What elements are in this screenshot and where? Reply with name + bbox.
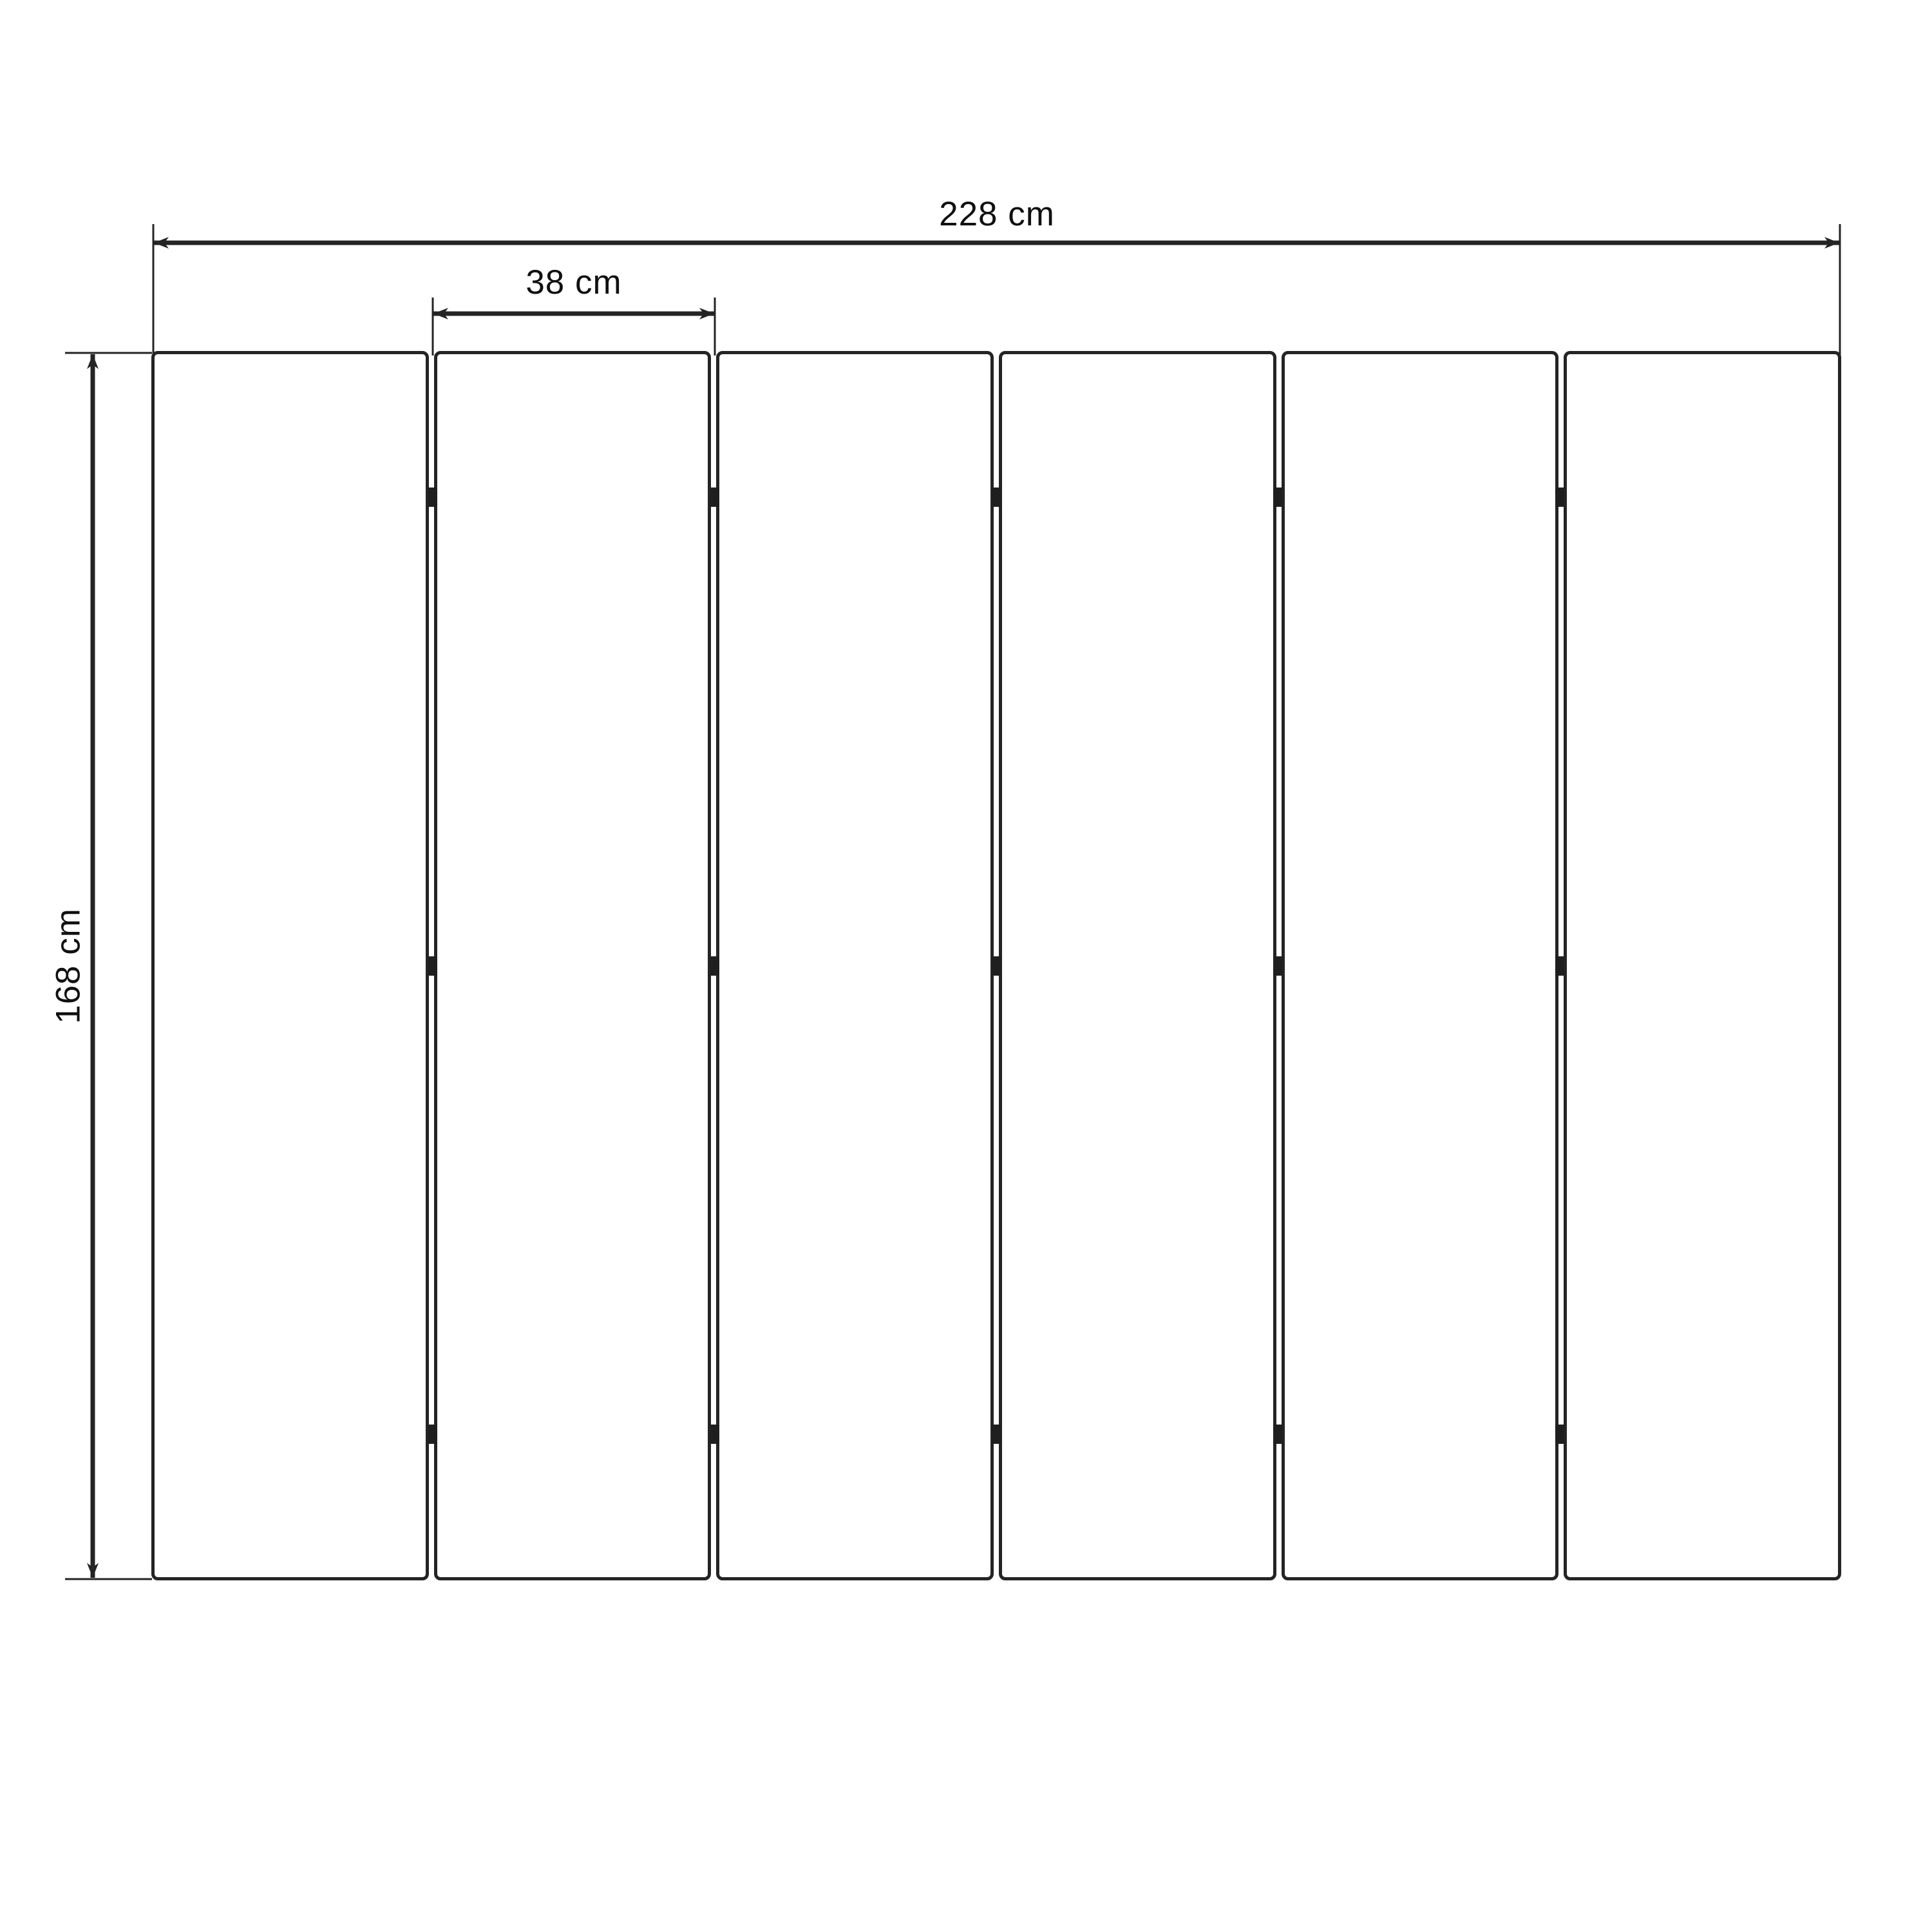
hinge-icon xyxy=(710,1425,719,1444)
panel-5 xyxy=(1282,351,1559,1580)
hinge-icon xyxy=(1555,488,1564,507)
panel-2 xyxy=(434,351,712,1580)
panel-width-dimension xyxy=(433,298,715,355)
panel-1 xyxy=(151,351,429,1580)
height-label: 168 cm xyxy=(52,908,86,1024)
hinge-icon xyxy=(1555,956,1564,976)
hinge-icon xyxy=(1273,488,1282,507)
panel-width-label: 38 cm xyxy=(445,265,703,299)
total-width-label: 228 cm xyxy=(836,197,1158,231)
hinge-icon xyxy=(1273,1425,1282,1444)
hinge-icon xyxy=(1273,956,1282,976)
hinge-icon xyxy=(428,488,437,507)
hinge-icon xyxy=(710,956,719,976)
total-width-dimension xyxy=(153,224,1840,355)
hinge-icon xyxy=(992,956,1001,976)
hinge-icon xyxy=(1555,1425,1564,1444)
panel-row xyxy=(151,351,1841,1580)
hinge-icon xyxy=(428,956,437,976)
hinge-icon xyxy=(992,488,1001,507)
hinge-icon xyxy=(992,1425,1001,1444)
dimension-drawing: 228 cm 38 cm 168 cm xyxy=(0,0,1932,1932)
hinge-icon xyxy=(428,1425,437,1444)
panel-3 xyxy=(716,351,994,1580)
hinge-icon xyxy=(710,488,719,507)
panel-6 xyxy=(1564,351,1841,1580)
panel-4 xyxy=(999,351,1276,1580)
